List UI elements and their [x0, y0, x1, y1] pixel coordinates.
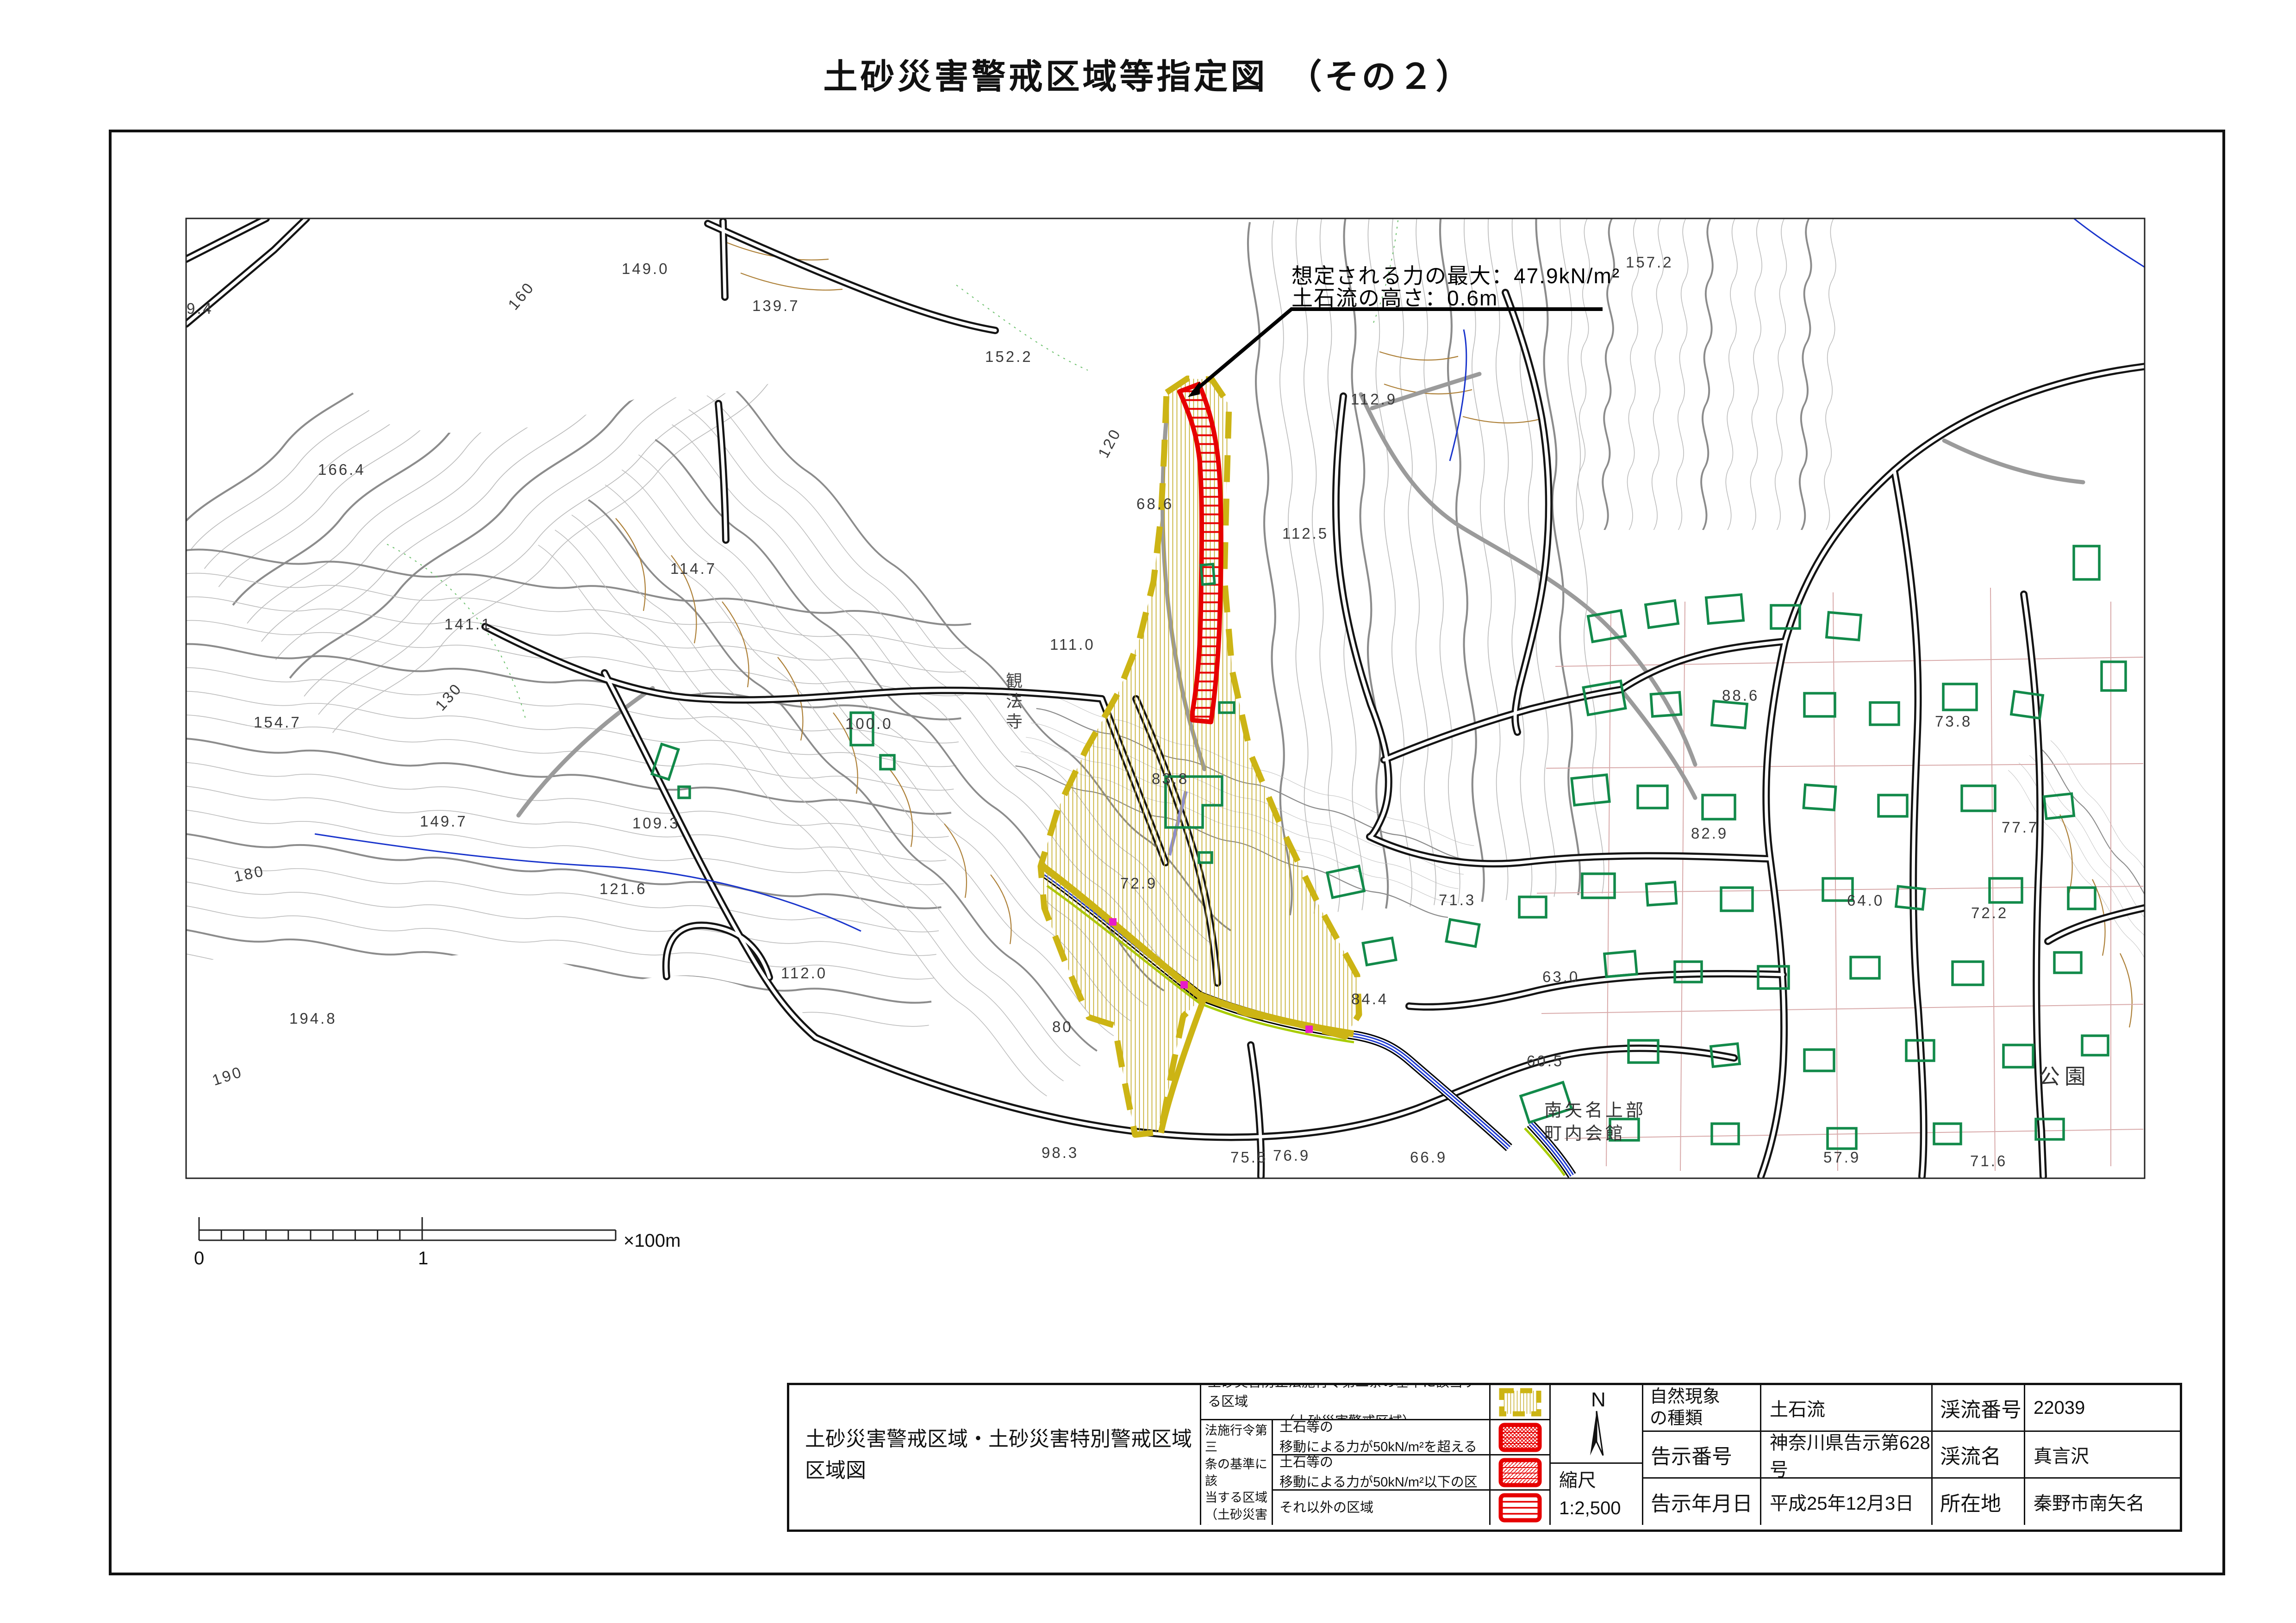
legend-map-title: 土砂災害警戒区域・土砂災害特別警戒区域区域図	[789, 1385, 1201, 1525]
elevation-label: 80	[1052, 1018, 1073, 1035]
legend-row4-text: それ以外の区域	[1273, 1491, 1491, 1525]
info-label-location: 所在地	[1933, 1479, 2025, 1525]
info-label-notice-date: 告示年月日	[1643, 1479, 1761, 1525]
map-area: 157.2 149.0 139.7 9.4 166.4 152.2 114.7 …	[185, 218, 2146, 1179]
info-value-notice-date: 平成25年12月3日	[1761, 1479, 1933, 1525]
info-label-notice-number: 告示番号	[1643, 1432, 1761, 1479]
elevation-label: 73.8	[1935, 713, 1972, 730]
scale-unit: ×100m	[624, 1231, 680, 1251]
community-hall-label: 南矢名上部	[1544, 1101, 1646, 1120]
elevation-label: 154.7	[254, 714, 301, 731]
elevation-label: 66.9	[1410, 1149, 1447, 1166]
info-value-location: 秦野市南矢名	[2025, 1479, 2180, 1525]
elevation-label: 139.7	[752, 297, 800, 314]
legend-symbol-other-area	[1491, 1491, 1551, 1525]
elevation-label: 60.5	[1527, 1052, 1564, 1070]
elevation-label: 77.7	[2002, 819, 2039, 836]
elevation-label: 72.2	[1971, 904, 2008, 921]
scale-bar: 0 1 ×100m	[183, 1213, 711, 1277]
elevation-label: 98.3	[1042, 1144, 1079, 1161]
info-label-stream-number: 渓流番号	[1933, 1385, 2025, 1432]
elevation-label: 157.2	[1626, 254, 1673, 271]
temple-label: 観法寺	[1001, 672, 1025, 733]
legend-group-label: 土砂災害防止 法施行令第三 条の基準に該 当する区域 （土砂災害特別 警戒区域）	[1201, 1420, 1273, 1525]
elevation-label: 141.1	[444, 616, 492, 633]
elevation-label: 149.0	[622, 260, 669, 277]
scale-one: 1	[418, 1248, 428, 1269]
page-title: 土砂災害警戒区域等指定図 （その２）	[824, 49, 1473, 99]
legend-row3-text: 土石流の高さが１ｍ超える場合、土石等の移動による力が50kN/m²以下の区域	[1273, 1455, 1491, 1491]
elevation-label: 166.4	[318, 461, 366, 478]
elevation-label: 109.3	[632, 815, 680, 832]
north-indicator: N	[1551, 1385, 1643, 1464]
annotation-flow-height: 土石流の高さ：0.6m	[1291, 286, 1498, 310]
legend-symbol-special-over50	[1491, 1420, 1551, 1455]
elevation-label: 83.8	[1152, 770, 1189, 787]
info-label-stream-name: 渓流名	[1933, 1432, 2025, 1479]
info-value-phenomenon: 土石流	[1761, 1385, 1933, 1432]
elevation-label: 71.6	[1970, 1152, 2007, 1169]
topographic-map: 157.2 149.0 139.7 9.4 166.4 152.2 114.7 …	[185, 218, 2146, 1179]
elevation-label: 72.9	[1120, 875, 1157, 892]
elevation-label: 149.7	[420, 813, 468, 830]
elevation-label: 75.5	[1230, 1149, 1267, 1166]
elevation-label: 63.0	[1542, 968, 1579, 985]
elevation-label: 112.5	[1282, 525, 1329, 542]
info-value-notice-number: 神奈川県告示第628号	[1761, 1432, 1933, 1479]
elevation-label: 84.4	[1351, 990, 1388, 1007]
info-value-stream-number: 22039	[2025, 1385, 2180, 1432]
elevation-label: 111.0	[1050, 636, 1095, 653]
legend-and-info-table: 土砂災害警戒区域・土砂災害特別警戒区域区域図 土砂災害防止法施行令第二条の基準に…	[787, 1383, 2182, 1532]
elevation-label: 114.7	[670, 560, 717, 577]
info-label-phenomenon: 自然現象 の種類	[1643, 1385, 1761, 1432]
elevation-label: 194.8	[289, 1010, 337, 1027]
info-value-stream-name: 真言沢	[2025, 1432, 2180, 1479]
legend-symbol-warning-area	[1491, 1385, 1551, 1420]
elevation-label: 112.9	[1351, 391, 1397, 408]
elevation-label: 88.6	[1722, 687, 1759, 704]
elevation-label: 9.4	[187, 300, 213, 317]
elevation-label: 100.0	[845, 715, 893, 732]
north-letter: N	[1591, 1388, 1606, 1411]
scale-ratio: 縮尺1:2,500	[1551, 1464, 1643, 1525]
legend-row1-text: 土砂災害防止法施行令第二条の基準に該当する区域（土砂災害警戒区域）	[1201, 1385, 1491, 1420]
elevation-label: 121.6	[599, 880, 647, 897]
scale-zero: 0	[194, 1248, 204, 1269]
elevation-label: 68.6	[1136, 495, 1173, 512]
elevation-label: 82.9	[1691, 825, 1728, 842]
elevation-label: 64.0	[1847, 892, 1884, 909]
elevation-label: 76.9	[1273, 1147, 1310, 1164]
elevation-label: 57.9	[1823, 1149, 1860, 1166]
community-hall-label: 町内会館	[1544, 1124, 1626, 1144]
annotation-max-force: 想定される力の最大：47.9kN/m²	[1291, 264, 1620, 288]
hazard-map-sheet: 土砂災害警戒区域等指定図 （その２）	[0, 0, 2296, 1623]
legend-symbol-special-under50	[1491, 1455, 1551, 1491]
park-label: 公園	[2039, 1064, 2090, 1088]
legend-row2-text: 土石流の高さが１ｍ超える場合、土石等の移動による力が50kN/m²を超える区域	[1273, 1420, 1491, 1455]
elevation-label: 152.2	[985, 348, 1033, 365]
elevation-label: 71.3	[1439, 891, 1476, 908]
elevation-label: 112.0	[781, 964, 827, 982]
